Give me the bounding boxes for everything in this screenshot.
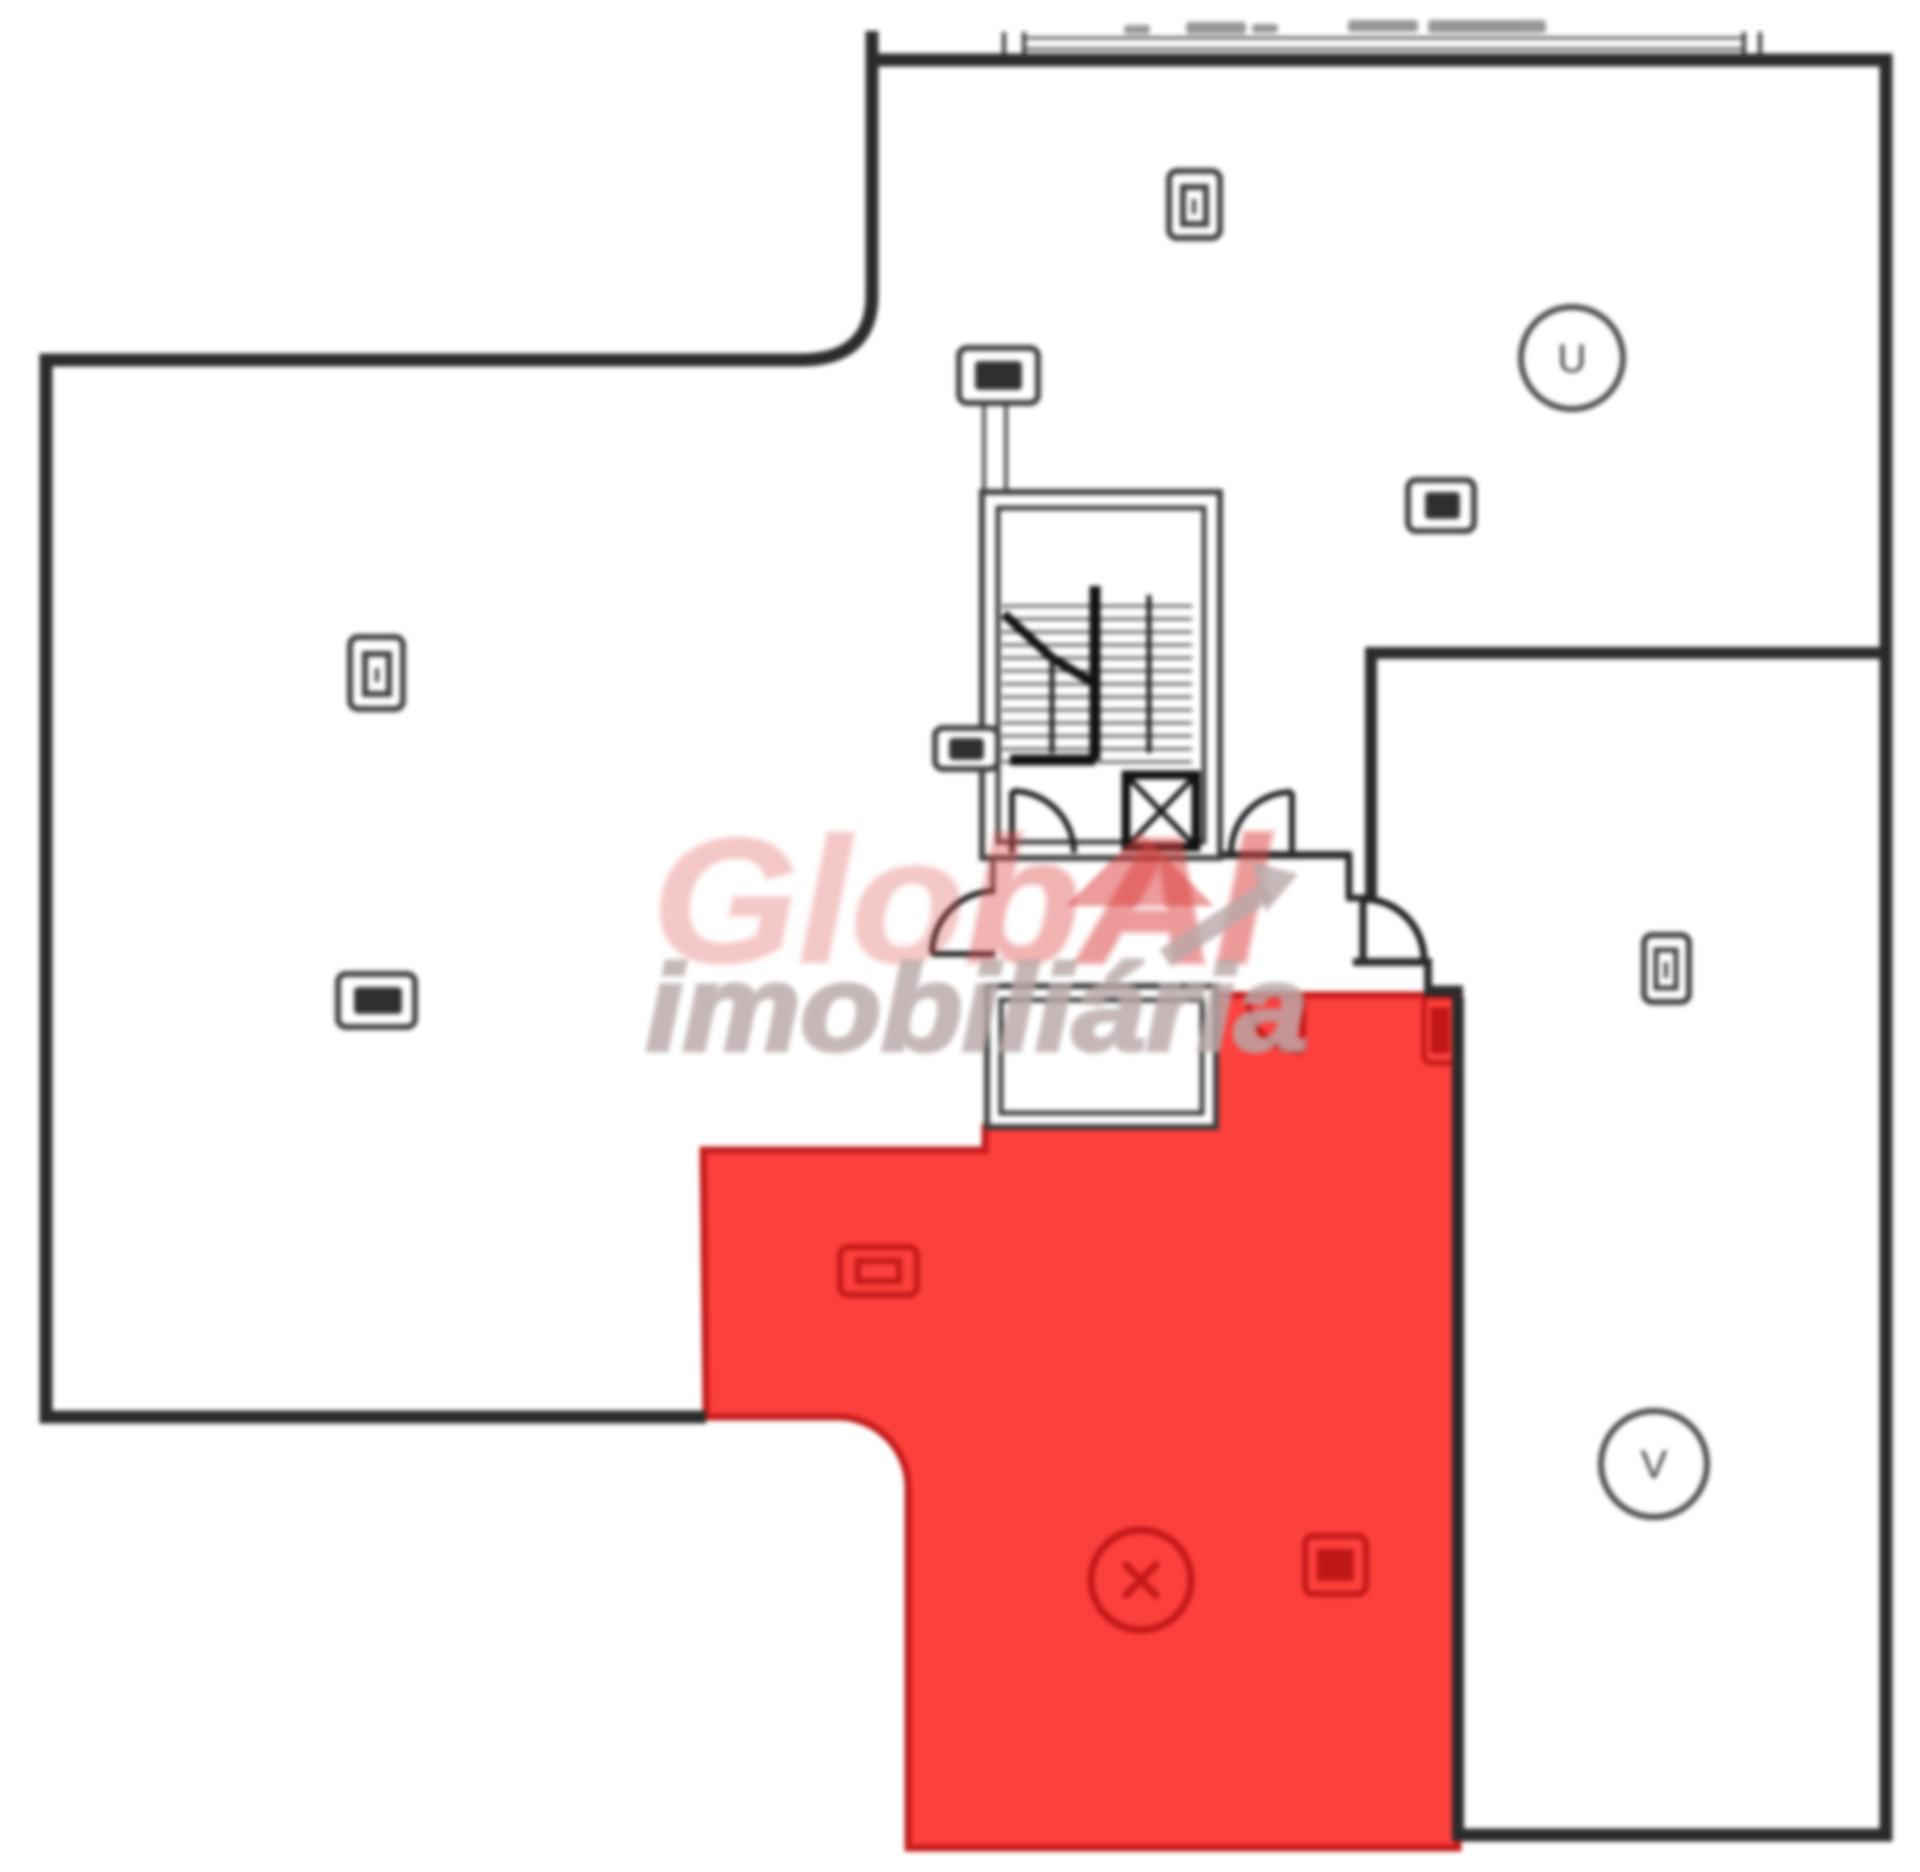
svg-text:U: U — [1558, 337, 1587, 381]
svg-text:V: V — [1641, 1443, 1668, 1487]
svg-text:imobiliária: imobiliária — [646, 940, 1308, 1076]
